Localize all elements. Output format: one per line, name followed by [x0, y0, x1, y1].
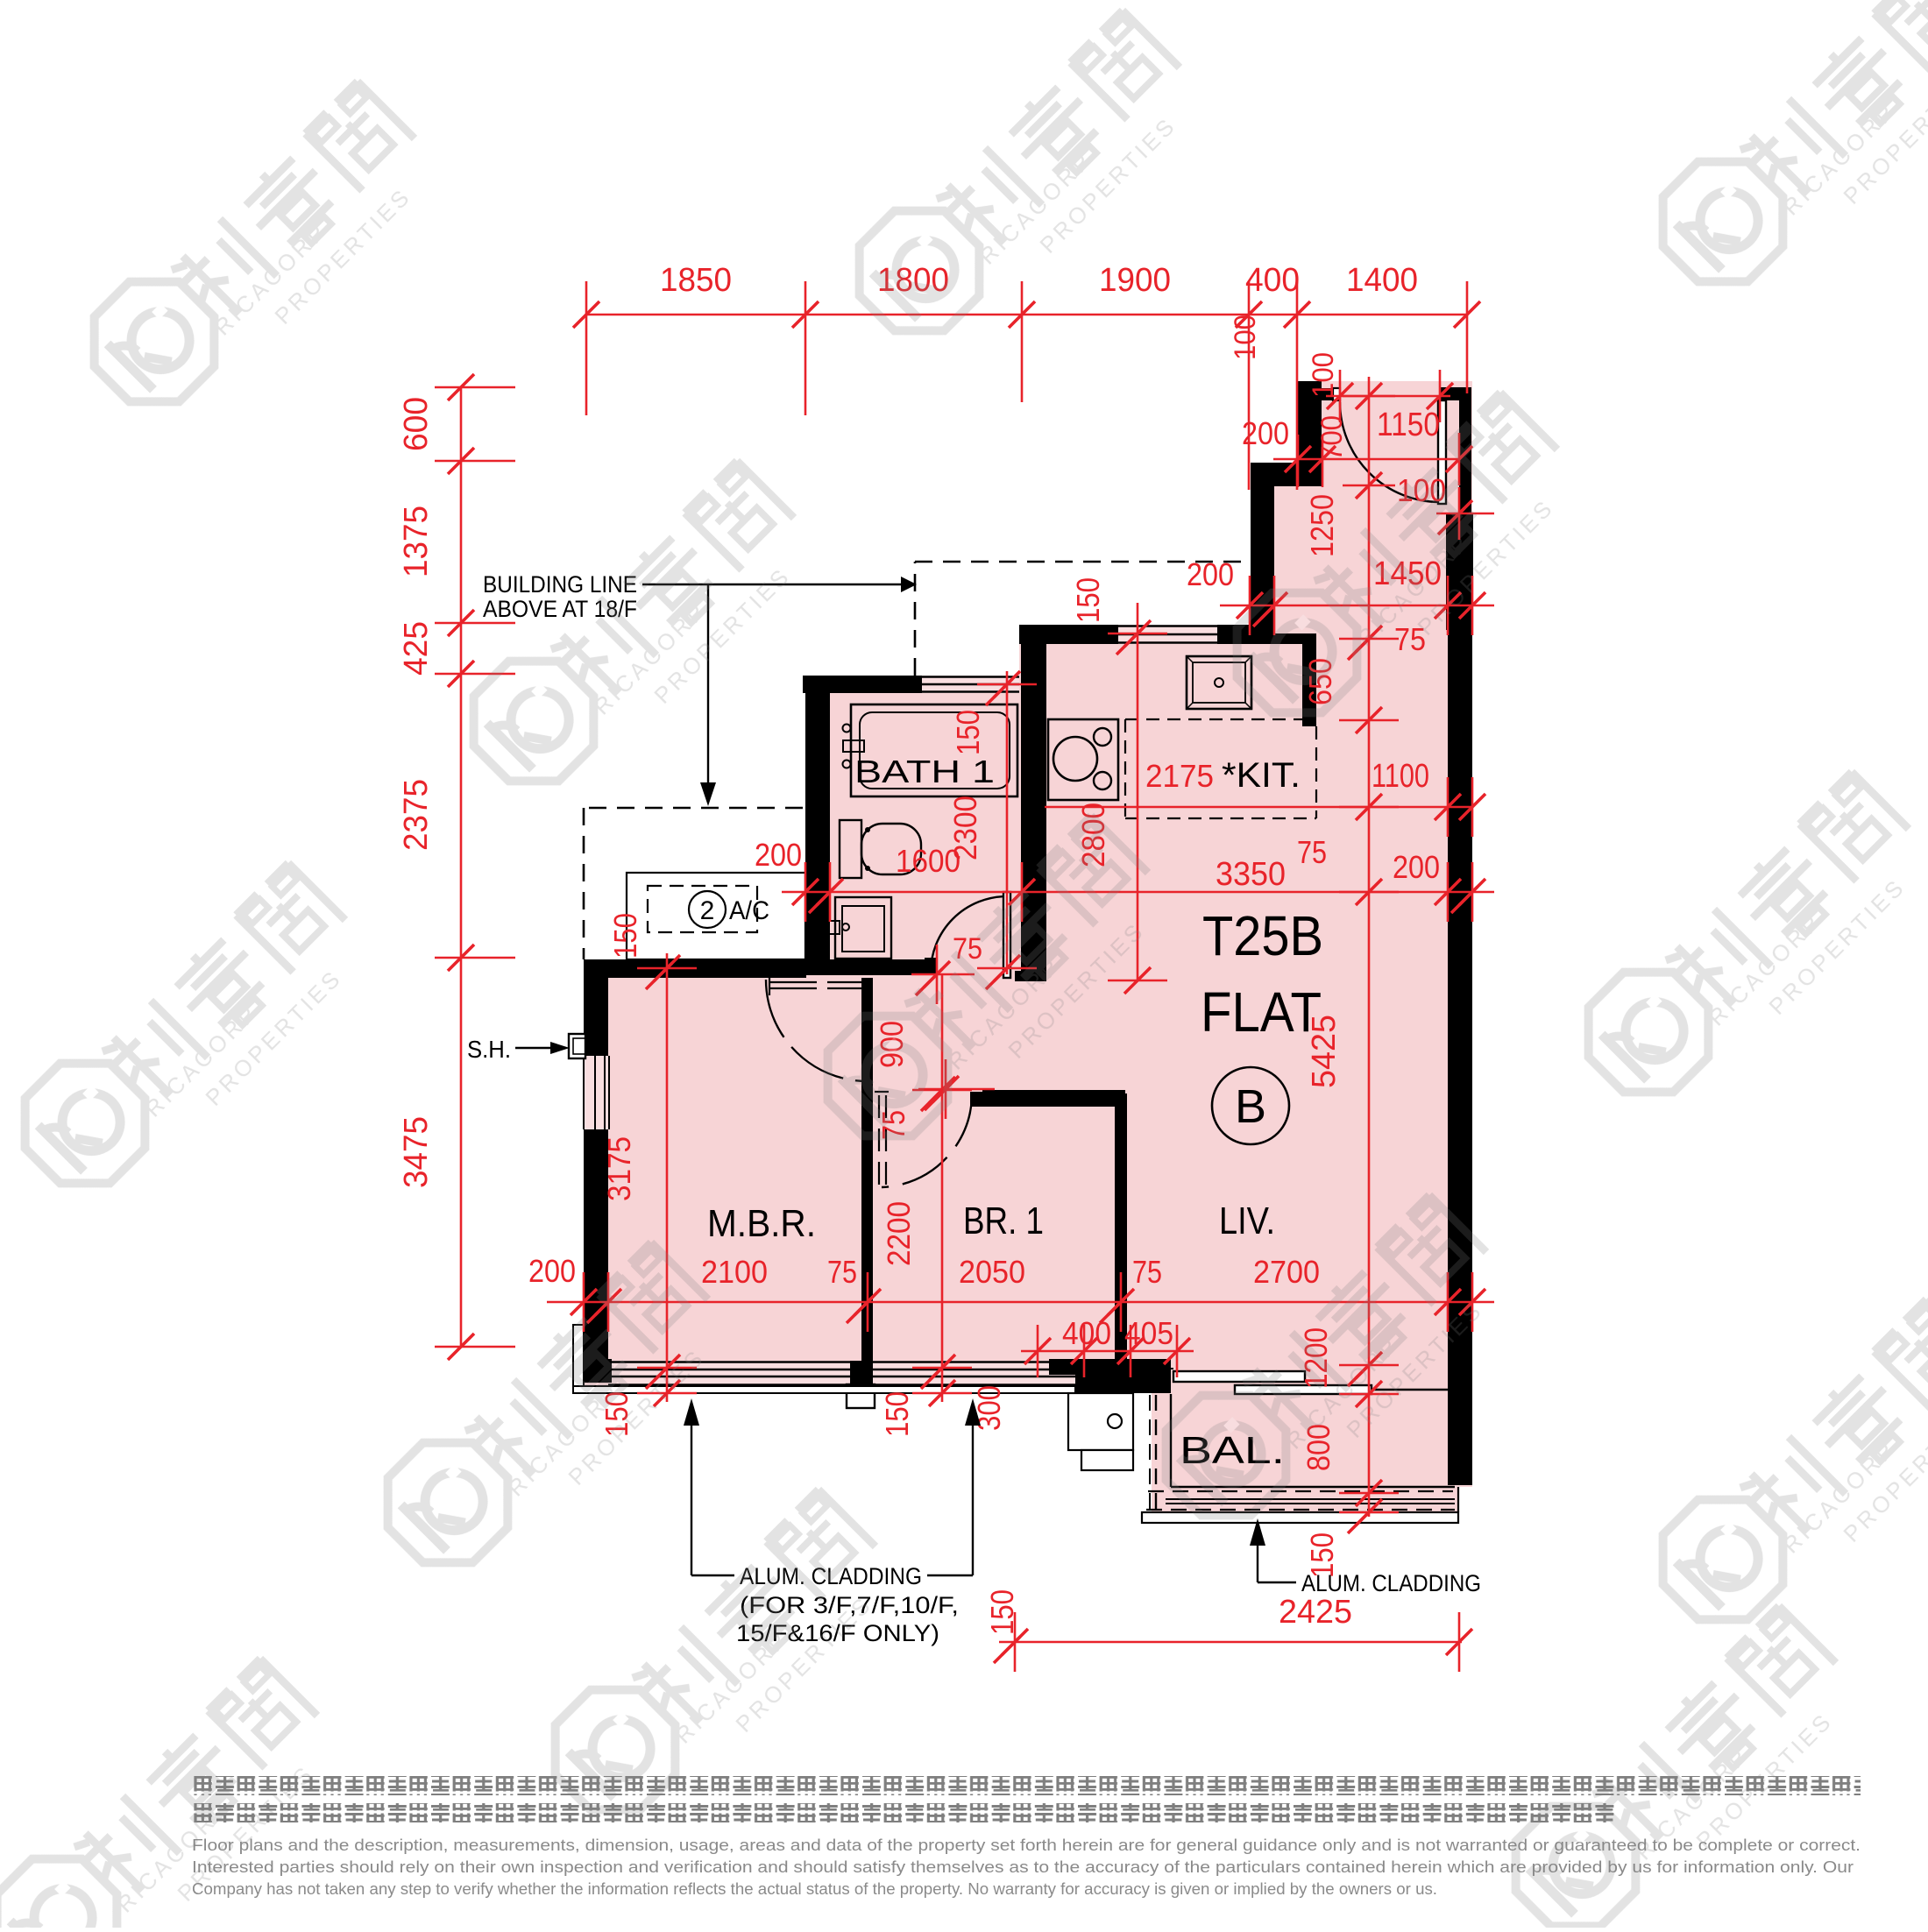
- svg-text:ALUM. CLADDING: ALUM. CLADDING: [1301, 1570, 1481, 1596]
- svg-text:3475: 3475: [398, 1116, 435, 1188]
- svg-text:600: 600: [398, 397, 435, 451]
- svg-text:200: 200: [1242, 415, 1289, 451]
- svg-text:3350: 3350: [1216, 856, 1286, 893]
- svg-text:BATH 1: BATH 1: [854, 754, 995, 789]
- svg-text:T25B: T25B: [1202, 904, 1323, 967]
- svg-text:LIV.: LIV.: [1219, 1200, 1275, 1242]
- svg-text:425: 425: [398, 621, 435, 676]
- svg-text:FLAT: FLAT: [1201, 980, 1322, 1044]
- svg-text:100: 100: [1229, 315, 1262, 360]
- svg-text:1400: 1400: [1346, 262, 1418, 299]
- svg-text:1850: 1850: [660, 262, 732, 299]
- svg-text:2175: 2175: [1145, 758, 1214, 794]
- svg-text:700: 700: [1315, 415, 1349, 461]
- svg-text:2425: 2425: [1279, 1594, 1352, 1631]
- svg-text:150: 150: [1070, 577, 1106, 623]
- svg-text:A/C: A/C: [729, 896, 769, 925]
- svg-text:75: 75: [827, 1254, 857, 1290]
- svg-text:200: 200: [528, 1253, 576, 1289]
- svg-text:150: 150: [950, 710, 986, 755]
- svg-text:1375: 1375: [398, 506, 435, 577]
- svg-text:1150: 1150: [1377, 407, 1440, 443]
- svg-text:M.B.R.: M.B.R.: [707, 1202, 816, 1245]
- svg-text:75: 75: [1132, 1254, 1162, 1290]
- svg-text:2300: 2300: [947, 796, 983, 860]
- svg-text:B: B: [1235, 1080, 1266, 1133]
- svg-text:150: 150: [879, 1391, 915, 1437]
- svg-text:150: 150: [607, 913, 643, 959]
- svg-text:1250: 1250: [1304, 494, 1340, 557]
- svg-text:2: 2: [700, 896, 715, 925]
- svg-text:400: 400: [1062, 1315, 1111, 1351]
- svg-text:405: 405: [1124, 1315, 1173, 1351]
- svg-text:S.H.: S.H.: [467, 1036, 511, 1063]
- svg-text:2100: 2100: [701, 1254, 768, 1290]
- svg-text:1900: 1900: [1099, 262, 1171, 299]
- svg-text:Interested parties should rely: Interested parties should rely on their …: [192, 1858, 1854, 1876]
- svg-text:3175: 3175: [601, 1136, 637, 1201]
- svg-text:5425: 5425: [1306, 1015, 1343, 1088]
- svg-text:200: 200: [755, 837, 802, 873]
- svg-text:150: 150: [984, 1589, 1020, 1635]
- svg-text:BAL.: BAL.: [1180, 1429, 1285, 1472]
- svg-text:100: 100: [1307, 352, 1340, 398]
- svg-text:BR. 1: BR. 1: [963, 1200, 1044, 1242]
- svg-text:200: 200: [1187, 556, 1234, 592]
- svg-text:1100: 1100: [1372, 758, 1429, 795]
- svg-text:400: 400: [1245, 262, 1300, 299]
- svg-text:BUILDING LINE: BUILDING LINE: [483, 571, 637, 598]
- svg-text:200: 200: [1393, 849, 1440, 885]
- svg-text:75: 75: [1297, 834, 1327, 870]
- svg-text:2700: 2700: [1253, 1254, 1320, 1290]
- svg-text:*KIT.: *KIT.: [1222, 756, 1301, 795]
- svg-text:Company has not taken any step: Company has not taken any step to verify…: [192, 1879, 1437, 1898]
- svg-text:2200: 2200: [881, 1201, 917, 1266]
- svg-text:2050: 2050: [959, 1254, 1025, 1290]
- svg-text:2375: 2375: [398, 779, 435, 851]
